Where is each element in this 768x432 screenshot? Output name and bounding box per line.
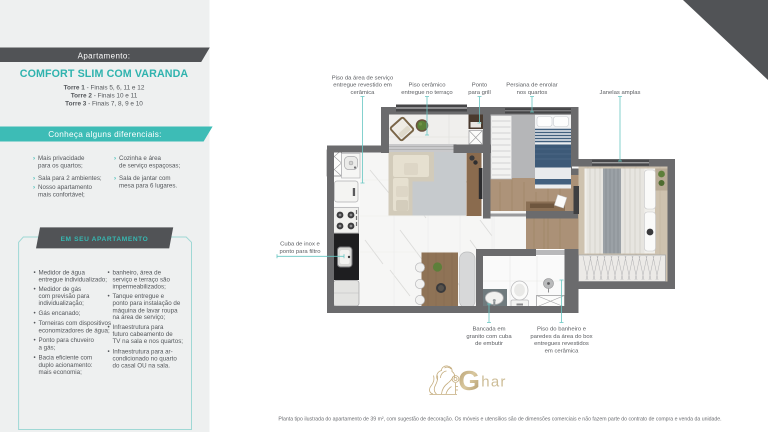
svg-text:Persiana de enrolar: Persiana de enrolar (506, 83, 557, 89)
svg-text:de serviço espaçosas;: de serviço espaçosas; (119, 163, 181, 170)
svg-text:•: • (34, 320, 36, 327)
svg-text:Infraestrutura para: Infraestrutura para (113, 324, 164, 331)
svg-text:Mais privacidade: Mais privacidade (38, 155, 85, 162)
svg-text:•: • (108, 293, 110, 300)
svg-text:Infraestrutura para ar-: Infraestrutura para ar- (113, 348, 173, 355)
svg-text:TV na sala e nos quartos;: TV na sala e nos quartos; (113, 338, 184, 345)
svg-text:individualização;: individualização; (39, 300, 85, 307)
svg-text:na área de serviço;: na área de serviço; (113, 314, 166, 321)
svg-text:Apartamento:: Apartamento: (78, 51, 131, 60)
svg-text:para os quartos;: para os quartos; (38, 163, 83, 170)
svg-text:•: • (34, 337, 36, 344)
svg-text:ponto para filtro: ponto para filtro (280, 249, 322, 255)
svg-text:para grill: para grill (468, 90, 491, 96)
svg-text:ponto para instalação de: ponto para instalação de (113, 300, 181, 307)
svg-text:condicionado no quarto: condicionado no quarto (113, 356, 178, 363)
svg-text:EM SEU APARTAMENTO: EM SEU APARTAMENTO (61, 236, 149, 243)
svg-text:•: • (108, 348, 110, 355)
svg-text:Bancada em: Bancada em (472, 327, 505, 333)
svg-text:Sala de jantar com: Sala de jantar com (119, 175, 171, 182)
svg-text:Piso do banheiro e: Piso do banheiro e (537, 327, 587, 333)
svg-text:entregue no terraço: entregue no terraço (401, 90, 453, 96)
svg-text:Piso da área de serviço: Piso da área de serviço (332, 76, 394, 82)
svg-text:mesa para 6 lugares.: mesa para 6 lugares. (119, 183, 177, 190)
svg-text:Janelas amplas: Janelas amplas (600, 90, 641, 96)
svg-text:Cuba de inox e: Cuba de inox e (280, 242, 320, 248)
svg-text:Sala para 2 ambientes;: Sala para 2 ambientes; (38, 175, 102, 182)
svg-text:com previsão para: com previsão para (39, 293, 90, 300)
svg-text:Gás encanado;: Gás encanado; (39, 310, 81, 317)
svg-text:entregue individualizado;: entregue individualizado; (39, 276, 108, 283)
svg-text:granito com cuba: granito com cuba (466, 334, 512, 340)
svg-text:do casal OU na sala.: do casal OU na sala. (113, 363, 171, 370)
svg-text:Piso cerâmico: Piso cerâmico (409, 83, 447, 89)
svg-text:•: • (34, 286, 36, 293)
svg-text:em cerâmica: em cerâmica (545, 348, 579, 354)
svg-text:futuro cabeamento de: futuro cabeamento de (113, 331, 174, 338)
svg-text:mais economia;: mais economia; (39, 369, 83, 376)
svg-text:›: › (33, 155, 35, 162)
svg-text:Ponto: Ponto (472, 83, 488, 89)
svg-text:›: › (114, 175, 116, 182)
svg-text:•: • (34, 354, 36, 361)
svg-text:nos quartos: nos quartos (517, 90, 548, 96)
svg-text:impermeabilizados;: impermeabilizados; (113, 284, 167, 291)
svg-text:har: har (481, 374, 506, 391)
svg-text:Torre 3 - Finais 7, 8, 9 e 10: Torre 3 - Finais 7, 8, 9 e 10 (65, 101, 143, 108)
svg-text:Bacia eficiente com: Bacia eficiente com (39, 354, 93, 361)
svg-text:•: • (34, 269, 36, 276)
svg-text:COMFORT SLIM COM VARANDA: COMFORT SLIM COM VARANDA (20, 68, 189, 80)
svg-text:Medidor de gás: Medidor de gás (39, 286, 82, 293)
svg-text:Conheça alguns diferenciais:: Conheça alguns diferenciais: (48, 130, 162, 139)
svg-text:entregue revestido em: entregue revestido em (333, 83, 392, 89)
svg-text:a gás;: a gás; (39, 344, 56, 351)
svg-text:cerâmica: cerâmica (351, 90, 376, 96)
svg-text:duplo acionamento:: duplo acionamento: (39, 362, 93, 369)
svg-text:›: › (33, 184, 35, 191)
svg-text:entregues revestidos: entregues revestidos (534, 341, 589, 347)
svg-text:economizadores de água;: economizadores de água; (39, 328, 110, 335)
svg-text:Torneiras com dispositivos: Torneiras com dispositivos (39, 320, 112, 327)
svg-text:Torre 1 - Finais 5, 6, 11 e 12: Torre 1 - Finais 5, 6, 11 e 12 (64, 85, 145, 92)
svg-text:›: › (114, 155, 116, 162)
svg-text:Tanque entregue e: Tanque entregue e (113, 293, 165, 300)
svg-text:mais confortável;: mais confortável; (38, 192, 85, 199)
svg-text:Nosso apartamento: Nosso apartamento (38, 184, 93, 191)
svg-text:Ponto para chuveiro: Ponto para chuveiro (39, 337, 95, 344)
svg-text:Torre 2 - Finais 10 e 11: Torre 2 - Finais 10 e 11 (71, 93, 138, 100)
svg-text:paredes da área do box: paredes da área do box (530, 334, 592, 340)
svg-text:serviço e terraço são: serviço e terraço são (113, 276, 171, 283)
svg-text:•: • (108, 269, 110, 276)
svg-text:›: › (33, 175, 35, 182)
svg-text:banheiro, área de: banheiro, área de (113, 269, 162, 276)
svg-text:•: • (34, 310, 36, 317)
svg-text:Medidor de água: Medidor de água (39, 269, 86, 276)
svg-text:•: • (108, 324, 110, 331)
svg-text:Cozinha e área: Cozinha e área (119, 155, 162, 162)
svg-text:G: G (458, 365, 480, 396)
svg-text:de embutir: de embutir (475, 341, 503, 347)
svg-text:Planta tipo ilustrada do apart: Planta tipo ilustrada do apartamento de … (278, 417, 721, 423)
